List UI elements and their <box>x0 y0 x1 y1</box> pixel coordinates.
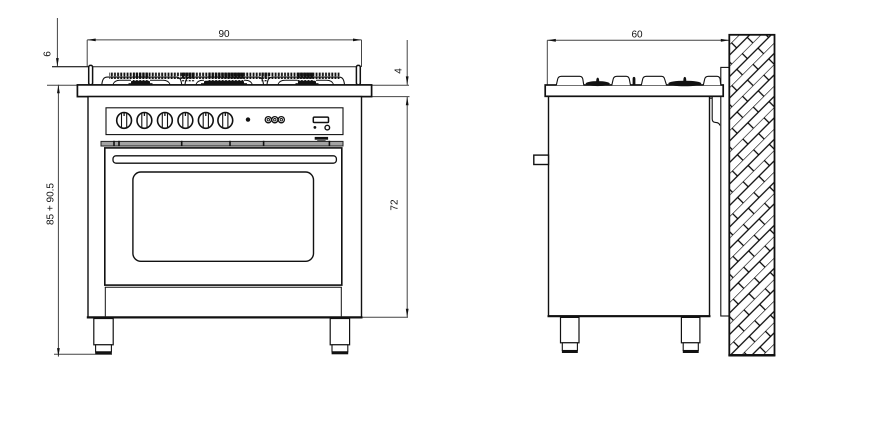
svg-text:60: 60 <box>631 30 643 41</box>
svg-text:90: 90 <box>218 29 230 40</box>
svg-text:85 + 90.5: 85 + 90.5 <box>46 183 57 225</box>
svg-text:4: 4 <box>394 68 405 74</box>
svg-text:6: 6 <box>43 51 54 57</box>
svg-text:72: 72 <box>390 199 401 211</box>
